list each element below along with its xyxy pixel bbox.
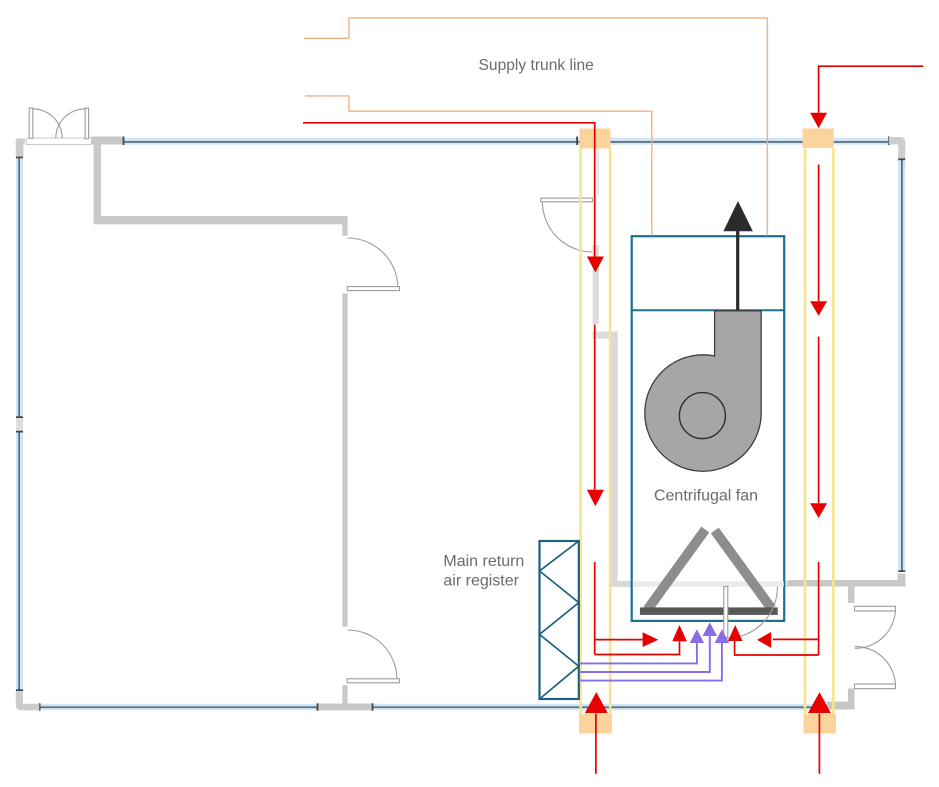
svg-text:Centrifugal fan: Centrifugal fan bbox=[654, 487, 758, 504]
svg-text:Supply trunk line: Supply trunk line bbox=[479, 57, 594, 74]
svg-text:air register: air register bbox=[443, 572, 519, 589]
svg-text:Main return: Main return bbox=[443, 553, 524, 570]
